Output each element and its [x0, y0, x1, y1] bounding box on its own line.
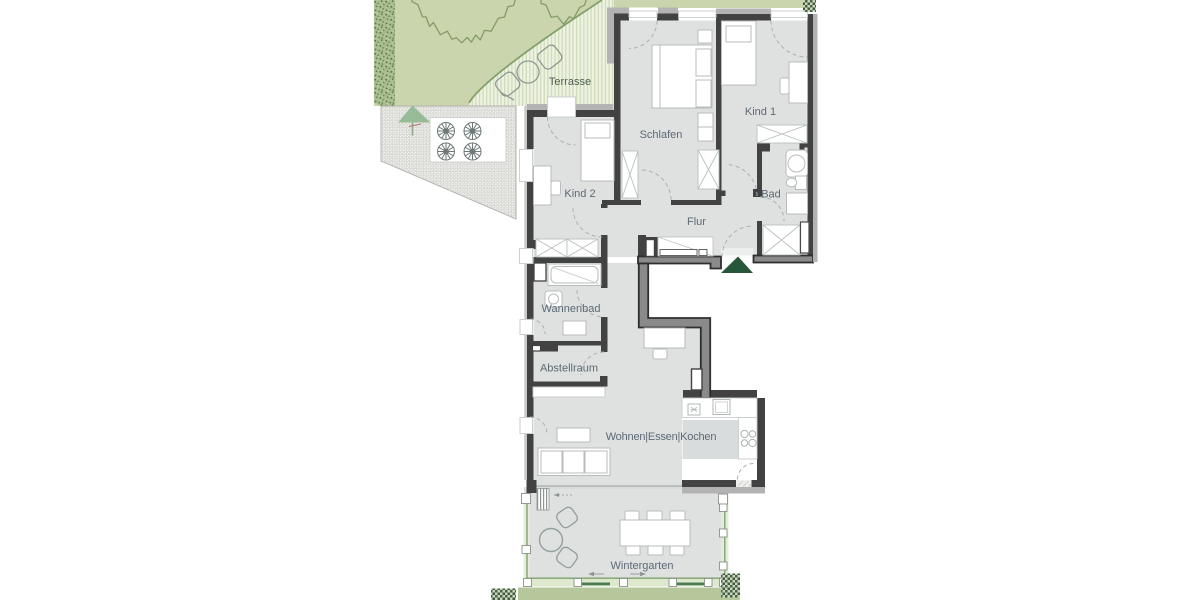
- svg-text:Bad: Bad: [761, 189, 781, 201]
- svg-text:Wohnen|Essen|Kochen: Wohnen|Essen|Kochen: [606, 431, 717, 443]
- svg-text:Abstellraum: Abstellraum: [540, 363, 598, 375]
- svg-text:Wintergarten: Wintergarten: [611, 560, 674, 572]
- svg-text:Terrasse: Terrasse: [549, 76, 591, 88]
- svg-text:Kind 2: Kind 2: [564, 188, 595, 200]
- svg-text:Wannenbad: Wannenbad: [542, 303, 601, 315]
- svg-text:Flur: Flur: [687, 216, 706, 228]
- svg-text:Kind 1: Kind 1: [745, 106, 776, 118]
- svg-text:Schlafen: Schlafen: [640, 129, 683, 141]
